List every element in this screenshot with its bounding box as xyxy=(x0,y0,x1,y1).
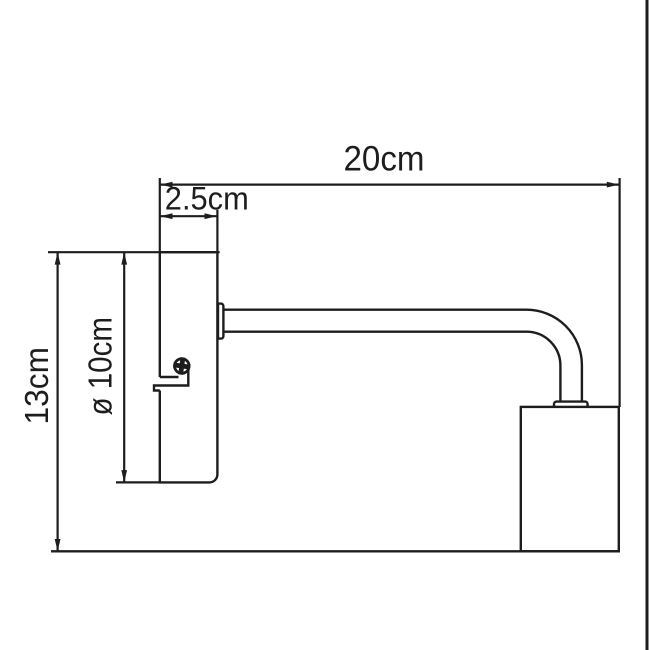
svg-text:2.5cm: 2.5cm xyxy=(165,180,249,216)
svg-text:13cm: 13cm xyxy=(18,347,55,425)
svg-text:ø 10cm: ø 10cm xyxy=(81,317,118,416)
svg-text:20cm: 20cm xyxy=(344,140,425,179)
